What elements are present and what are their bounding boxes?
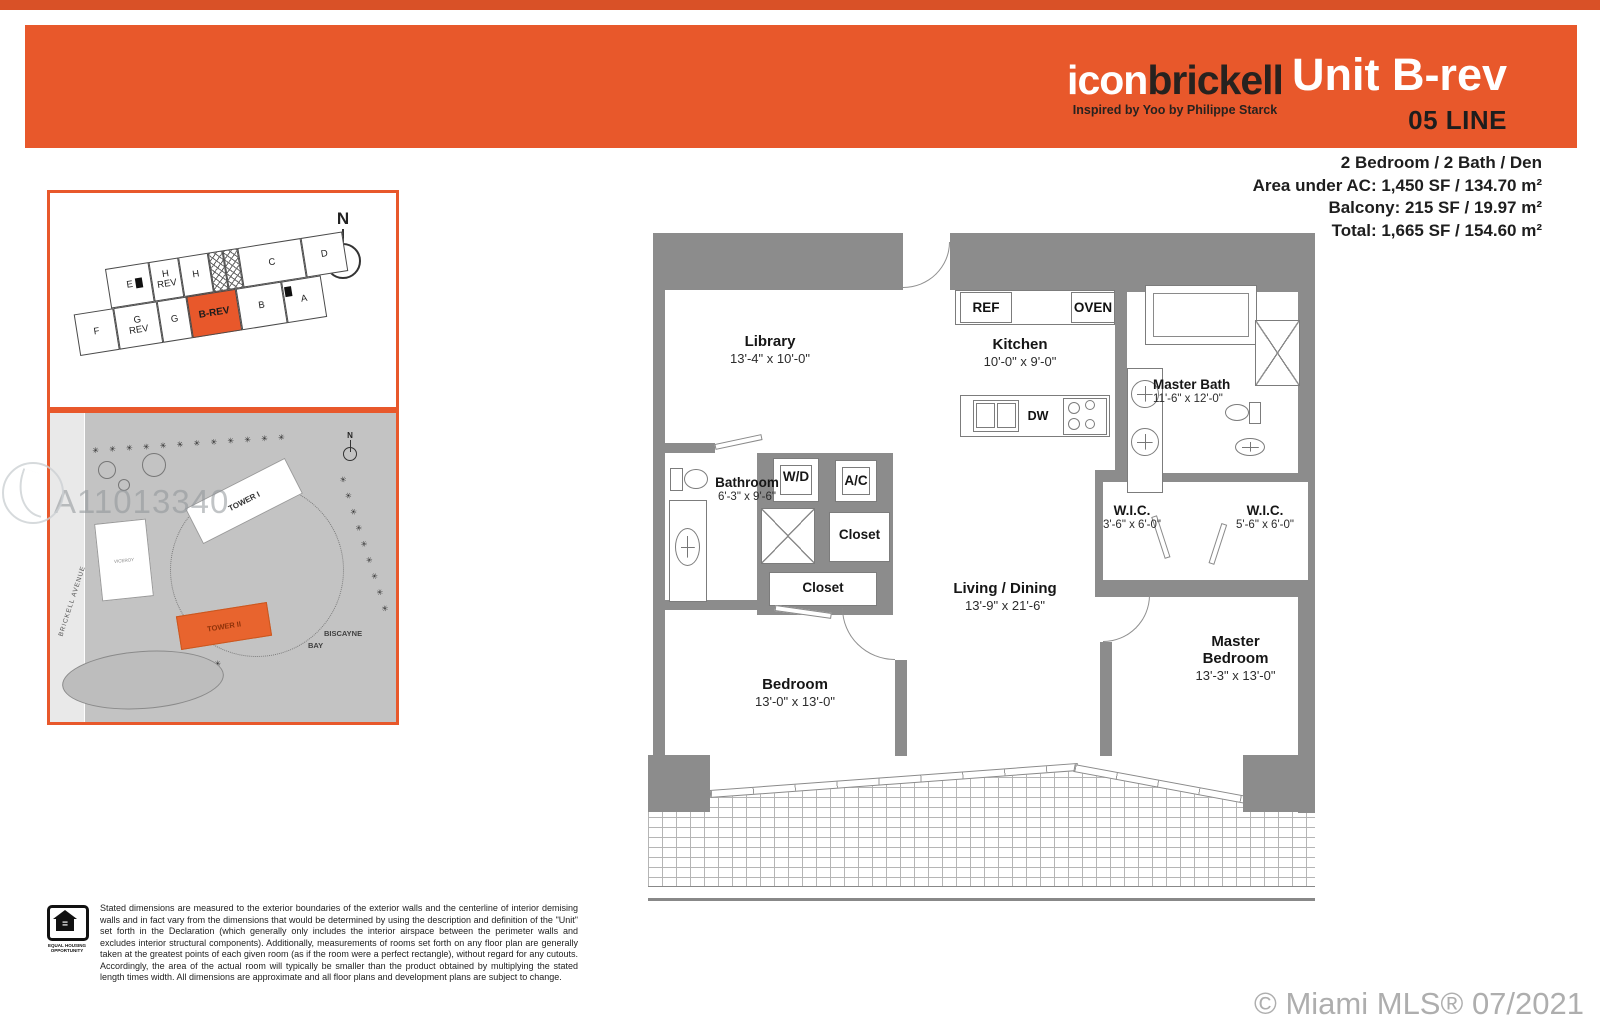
sink-basin bbox=[997, 403, 1016, 428]
disclaimer-text: Stated dimensions are measured to the ex… bbox=[100, 903, 578, 984]
mls-watermark-text: A11013340 bbox=[54, 483, 229, 521]
bidet-icon bbox=[1235, 438, 1265, 456]
stats-area-ac: Area under AC: 1,450 SF / 134.70 m² bbox=[1082, 175, 1542, 198]
sink-icon bbox=[1131, 428, 1159, 456]
bedroom-label: Bedroom 13'-0" x 13'-0" bbox=[700, 676, 890, 710]
top-accent-strip bbox=[0, 0, 1600, 10]
wall bbox=[653, 290, 665, 760]
mls-logo-watermark-icon bbox=[2, 462, 64, 524]
keyplan-unit-b-rev-highlighted: B-REV bbox=[186, 289, 242, 338]
balcony-edge bbox=[648, 886, 1315, 901]
dw-label: DW bbox=[1021, 400, 1055, 432]
toilet-icon bbox=[1225, 404, 1249, 421]
sink-basin bbox=[976, 403, 995, 428]
library-label: Library 13'-4" x 10'-0" bbox=[685, 333, 855, 367]
oven-label: OVEN bbox=[1069, 292, 1117, 323]
equal-housing-icon: = bbox=[47, 905, 89, 941]
elevator-marker-icon bbox=[135, 277, 143, 288]
park-area bbox=[60, 645, 226, 714]
burner-icon bbox=[1085, 419, 1095, 429]
line-label: 05 LINE bbox=[1292, 105, 1507, 136]
bathtub bbox=[1145, 285, 1257, 345]
guest-shower bbox=[761, 508, 815, 564]
header-bar: iconbrickell Inspired by Yoo by Philippe… bbox=[25, 25, 1577, 148]
brand-logo: iconbrickell Inspired by Yoo by Philippe… bbox=[1030, 59, 1320, 117]
copyright-text: © Miami MLS® 07/2021 bbox=[1254, 986, 1584, 1022]
brand-wordmark: iconbrickell bbox=[1030, 59, 1320, 101]
keyplan-box: N E H REV H C D F G REV G B-REV B A bbox=[47, 190, 399, 410]
master-shower bbox=[1255, 320, 1300, 386]
bathroom-door bbox=[714, 434, 762, 450]
unit-floorplan: REF OVEN DW W/D A/ bbox=[645, 228, 1317, 918]
fountain-circle bbox=[98, 461, 116, 479]
ref-label: REF bbox=[960, 292, 1012, 323]
elevator-marker-icon bbox=[284, 286, 292, 297]
brand-icon-text: icon bbox=[1067, 57, 1147, 103]
master-bath-label: Master Bath 11'-6" x 12'-0" bbox=[1153, 378, 1278, 406]
brand-brickell-text: brickell bbox=[1147, 57, 1283, 103]
entry-door-arc bbox=[903, 242, 950, 288]
trees-row-right: ✳ ✳ ✳ ✳ ✳ ✳ ✳ ✳ ✳ bbox=[337, 475, 399, 668]
house-roof-icon bbox=[53, 910, 77, 919]
wall bbox=[1100, 642, 1112, 756]
viceroy-building: VICEROY bbox=[94, 518, 154, 601]
keyplan-unit-d: D bbox=[301, 231, 349, 277]
toilet-tank bbox=[670, 468, 683, 491]
brand-tagline: Inspired by Yoo by Philippe Starck bbox=[1030, 103, 1320, 117]
bathtub-inner bbox=[1153, 293, 1249, 337]
closet-lower-label: Closet bbox=[769, 581, 877, 595]
keyplan-unit-g-rev: G REV bbox=[113, 301, 163, 349]
living-dining-label: Living / Dining 13'-9" x 21'-6" bbox=[895, 580, 1115, 614]
sink-icon bbox=[675, 528, 700, 566]
bay-label-line2: BAY bbox=[308, 641, 323, 650]
balcony-column bbox=[648, 755, 710, 812]
bathroom-label: Bathroom 6'-3" x 9'-6" bbox=[687, 476, 807, 504]
equal-housing-caption: EQUAL HOUSING OPPORTUNITY bbox=[47, 943, 87, 953]
siteplan-north-arrow: N bbox=[338, 431, 362, 461]
stats-balcony: Balcony: 215 SF / 19.97 m² bbox=[1082, 197, 1542, 220]
fountain-circle bbox=[142, 453, 166, 477]
house-body-icon: = bbox=[56, 919, 74, 931]
keyplan-unit-e: E bbox=[105, 262, 155, 308]
bay-label-line1: BISCAYNE bbox=[324, 629, 362, 638]
wic-large-label: W.I.C. 5'-6" x 6'-0" bbox=[1225, 504, 1305, 532]
burner-icon bbox=[1085, 400, 1095, 410]
wic-vestibule bbox=[1161, 482, 1220, 580]
wall bbox=[653, 233, 903, 290]
equal-housing-logo: = EQUAL HOUSING OPPORTUNITY bbox=[47, 905, 87, 953]
burner-icon bbox=[1068, 402, 1080, 414]
stats-bed-bath: 2 Bedroom / 2 Bath / Den bbox=[1082, 152, 1542, 175]
unit-title: Unit B-rev bbox=[1292, 51, 1507, 99]
north-label: N bbox=[338, 431, 362, 440]
wall bbox=[653, 443, 715, 453]
balcony-column bbox=[1243, 755, 1315, 812]
siteplan-box: BRICKELL AVENUE ✳ ✳ ✳ ✳ ✳ ✳ ✳ ✳ ✳ ✳ ✳ ✳ … bbox=[47, 410, 399, 725]
keyplan-building: E H REV H C D F G REV G B-REV B A bbox=[67, 228, 376, 356]
keyplan-unit-b: B bbox=[236, 282, 288, 331]
keyplan-unit-a: A bbox=[281, 275, 327, 323]
bedroom-door-arc bbox=[842, 608, 895, 660]
wic-small-label: W.I.C. 3'-6" x 6'-0" bbox=[1097, 504, 1167, 532]
trees-row-top: ✳ ✳ ✳ ✳ ✳ ✳ ✳ ✳ ✳ ✳ ✳ ✳ bbox=[92, 428, 357, 455]
north-circle bbox=[343, 447, 357, 461]
burner-icon bbox=[1068, 418, 1080, 430]
logo-swirl bbox=[10, 468, 53, 518]
unit-title-block: Unit B-rev 05 LINE bbox=[1292, 51, 1507, 136]
closet-upper-label: Closet bbox=[829, 528, 890, 542]
wall bbox=[950, 233, 1117, 290]
keyplan-unit-f: F bbox=[74, 308, 120, 356]
ac-label: A/C bbox=[833, 474, 879, 488]
wall bbox=[895, 660, 907, 756]
master-bedroom-label: Master Bedroom 13'-3" x 13'-0" bbox=[1163, 633, 1308, 684]
kitchen-label: Kitchen 10'-0" x 9'-0" bbox=[945, 336, 1095, 370]
north-label: N bbox=[318, 209, 368, 229]
floorplan-page: iconbrickell Inspired by Yoo by Philippe… bbox=[0, 0, 1600, 1035]
